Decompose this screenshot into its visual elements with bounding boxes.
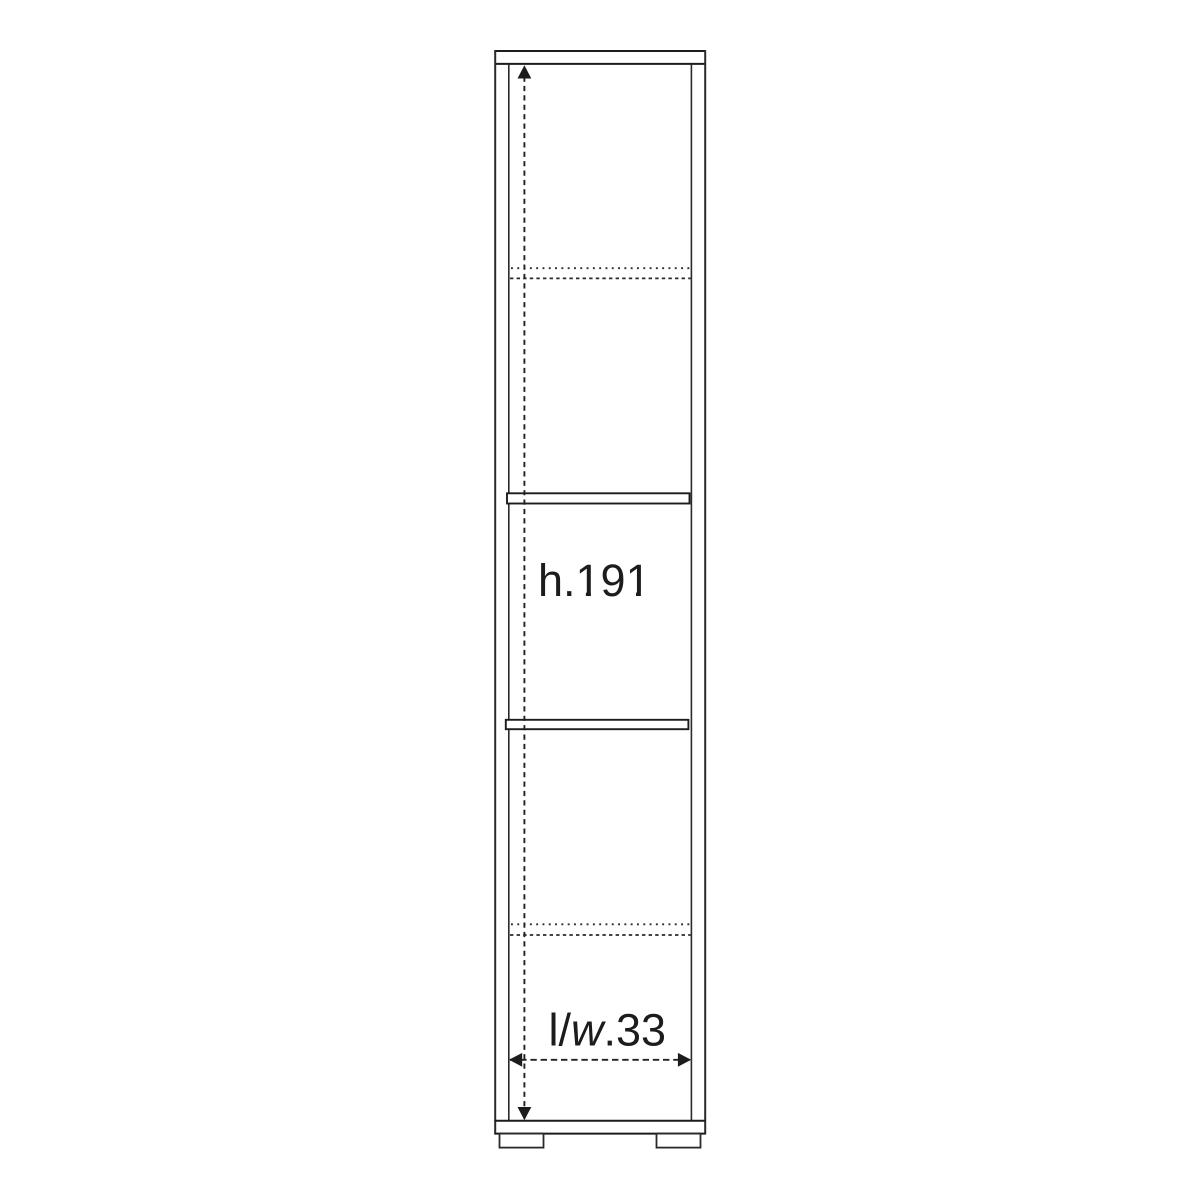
svg-text:h.191: h.191 (538, 555, 651, 606)
svg-text:l/w.33: l/w.33 (549, 1004, 667, 1055)
